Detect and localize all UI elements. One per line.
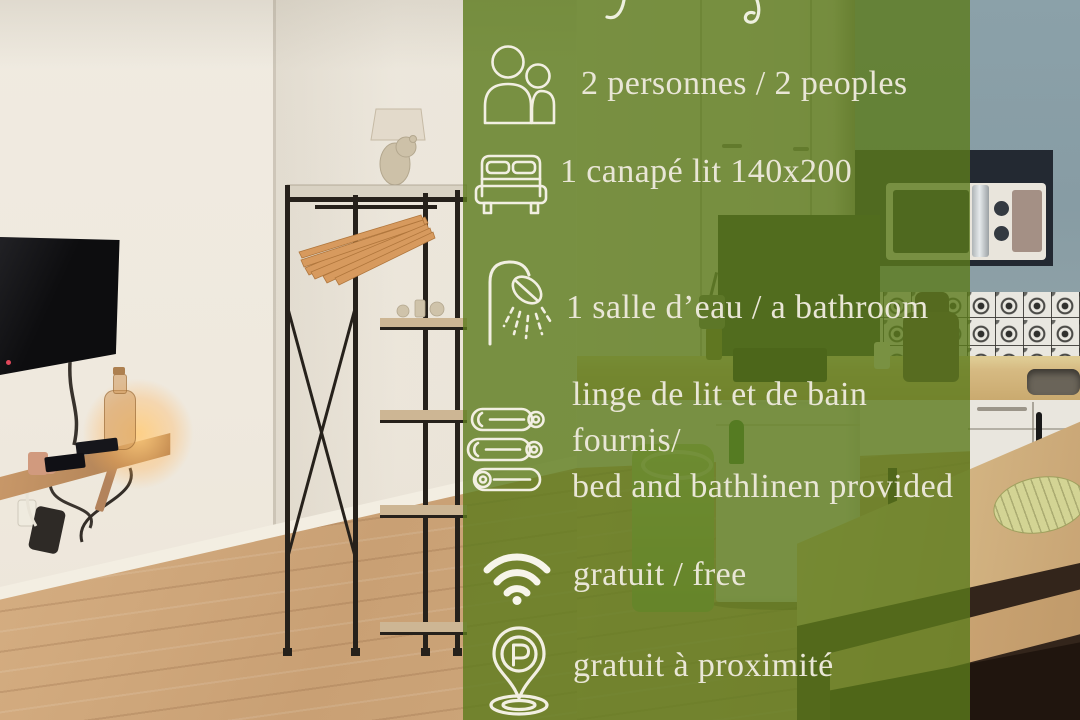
amenity-text-parking: gratuit à proximité bbox=[573, 643, 834, 689]
towels-stack-icon bbox=[466, 405, 554, 497]
amenity-line: linge de lit et de bain bbox=[572, 372, 953, 418]
amenity-line: gratuit à proximité bbox=[573, 643, 834, 689]
amenity-text-bed: 1 canapé lit 140x200 bbox=[560, 149, 852, 195]
amenity-line: 1 salle d’eau / a bathroom bbox=[566, 285, 929, 331]
amenity-line: fournis/ bbox=[572, 418, 953, 464]
wifi-icon bbox=[480, 543, 554, 607]
amenity-line: 1 canapé lit 140x200 bbox=[560, 149, 852, 195]
amenity-text-linen: linge de lit et de bain fournis/ bed and… bbox=[572, 372, 953, 510]
amenity-text-wifi: gratuit / free bbox=[573, 552, 747, 598]
amenity-text-bathroom: 1 salle d’eau / a bathroom bbox=[566, 285, 929, 331]
amenity-line: 2 personnes / 2 peoples bbox=[581, 61, 907, 107]
double-bed-icon bbox=[474, 148, 548, 222]
two-people-icon bbox=[478, 40, 558, 125]
parking-pin-icon bbox=[482, 624, 556, 716]
amenity-line: bed and bathlinen provided bbox=[572, 464, 953, 510]
amenities-list: 2 personnes / 2 peoples 1 canapé lit 140… bbox=[0, 0, 1080, 720]
script-title-descenders bbox=[540, 0, 840, 42]
amenity-line: gratuit / free bbox=[573, 552, 747, 598]
listing-photo-with-amenities: 2 personnes / 2 peoples 1 canapé lit 140… bbox=[0, 0, 1080, 720]
shower-icon bbox=[480, 250, 560, 346]
amenity-text-people: 2 personnes / 2 peoples bbox=[581, 61, 907, 107]
